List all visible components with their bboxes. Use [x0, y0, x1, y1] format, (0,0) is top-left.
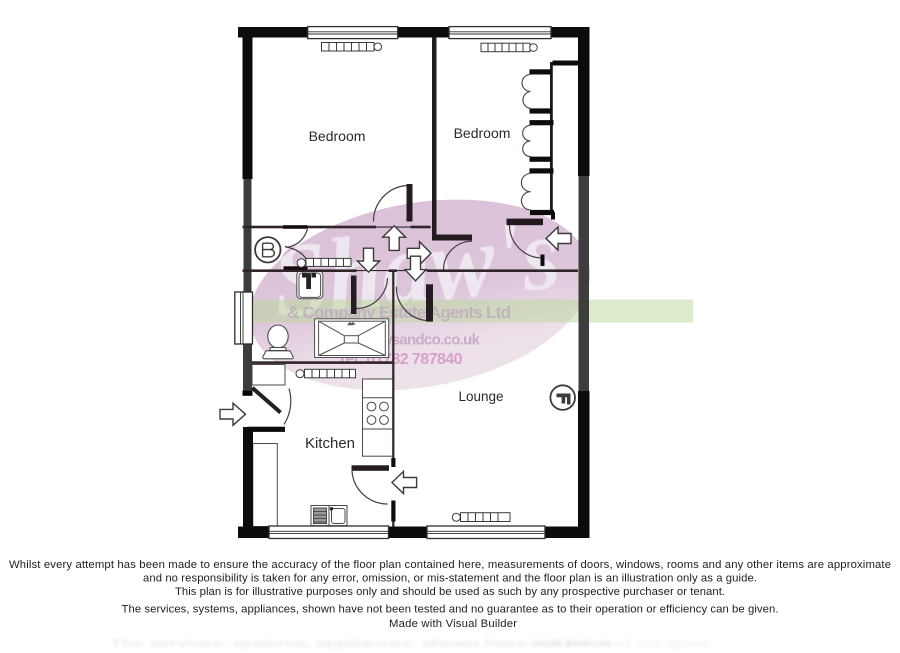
svg-text:Kitchen: Kitchen: [305, 435, 355, 452]
svg-text:and no responsibility is taken: and no responsibility is taken for any e…: [143, 573, 757, 585]
svg-text:tested and no guar: tested and no guar: [530, 638, 711, 650]
svg-text:Bedroom: Bedroom: [454, 125, 511, 141]
svg-text:Lounge: Lounge: [458, 389, 503, 404]
svg-text:Whilst every attempt has been: Whilst every attempt has been made to en…: [9, 559, 891, 571]
svg-text:The services, systems, applian: The services, systems, appliances, shown…: [122, 604, 779, 616]
svg-text:Bedroom: Bedroom: [309, 128, 366, 144]
svg-text:Made with Visual Builder: Made with Visual Builder: [389, 618, 517, 630]
svg-text:This plan is for illustrative: This plan is for illustrative purposes o…: [175, 586, 725, 598]
